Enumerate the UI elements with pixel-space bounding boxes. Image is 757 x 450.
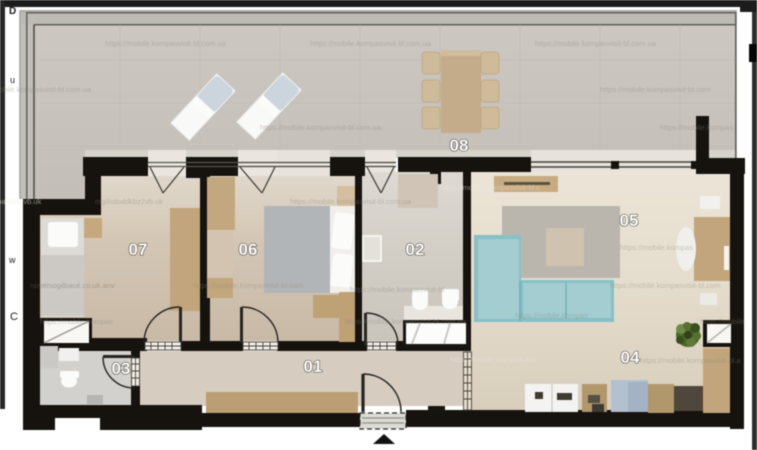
svg-text:https://mobile.kompasvisit-bl: https://mobile.kompasvisit-bl: [350, 285, 445, 294]
svg-text:https://mobile.kompasvisit-bl.: https://mobile.kompasvisit-bl.com.ua: [345, 317, 467, 326]
svg-text:https://mobile.kompasvisit-bl.: https://mobile.kompasvisit-bl.com.ua: [0, 85, 92, 94]
svg-text:u: u: [10, 75, 15, 85]
svg-text:05: 05: [620, 211, 639, 230]
svg-text:https://mobile.kompas: https://mobile.kompas: [660, 123, 733, 132]
svg-text:https://mobile.kompasvisit-bl.: https://mobile.kompasvisit-bl.com.ua: [535, 39, 657, 48]
svg-text:08: 08: [450, 136, 469, 155]
svg-text:03: 03: [112, 359, 131, 378]
svg-text:D: D: [9, 6, 16, 17]
svg-text:https://mobile.kompasvisit-bl.: https://mobile.kompasvisit-bl.com.ua: [260, 123, 382, 132]
svg-text:07: 07: [129, 240, 148, 259]
svg-text:C: C: [10, 311, 18, 323]
svg-text:https://mobile.kompasvisit-bl.: https://mobile.kompasvisit-bl.com.ua: [290, 197, 412, 206]
svg-text:mgilsdoddkbz2vb.uk: mgilsdoddkbz2vb.uk: [95, 197, 163, 206]
svg-text:https://mobile.kompas: https://mobile.kompas: [620, 243, 693, 252]
svg-text:https://mobile.kompasvisit-bl.: https://mobile.kompasvisit-bl.c: [440, 183, 540, 192]
svg-text:https://mobile.kompasvisit: https://mobile.kompasvisit: [450, 355, 537, 364]
svg-text:https://mobile.kompas: https://mobile.kompas: [515, 311, 588, 320]
svg-text:novemogilbacé.co.uk.anv: novemogilbacé.co.uk.anv: [30, 281, 115, 290]
svg-text:https://mobile.kompasvisit-bl.: https://mobile.kompasvisit-bl.com: [610, 281, 720, 290]
svg-text:https://mobile.kompasvisit-bl.: https://mobile.kompasvisit-bl.com: [600, 85, 710, 94]
svg-text:04: 04: [621, 348, 640, 367]
svg-text:06: 06: [239, 240, 258, 259]
svg-text:spllidbankla2vb.uk: spllidbankla2vb.uk: [0, 197, 42, 206]
svg-text:https://mobile.kompasvisit-bl.: https://mobile.kompasvisit-bl.com.ua: [105, 39, 227, 48]
svg-text:02: 02: [406, 240, 425, 259]
svg-text:https://mobile.kompas: https://mobile.kompas: [40, 317, 113, 326]
svg-text:https://mobile.kompasvisit-bl.: https://mobile.kompasvisit-bl.com: [193, 281, 303, 290]
svg-text:01: 01: [304, 357, 323, 376]
svg-text:https://mobile.kompasvisit-bl.: https://mobile.kompasvisit-bl.a: [640, 356, 741, 365]
svg-text:w: w: [8, 255, 16, 265]
svg-text:https://mobile.kompasvisit-bl.: https://mobile.kompasvisit-bl.com.ua: [310, 39, 432, 48]
svg-text:https://mobile: https://mobile: [700, 317, 745, 326]
